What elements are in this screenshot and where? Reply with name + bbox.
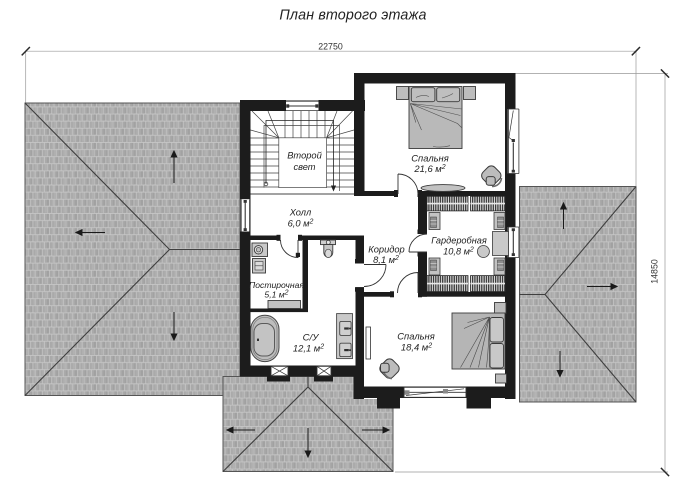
svg-text:18,4 м2: 18,4 м2 xyxy=(401,342,432,353)
svg-text:10,8 м2: 10,8 м2 xyxy=(443,247,474,257)
svg-text:Второй: Второй xyxy=(287,151,322,161)
svg-text:Постирочная: Постирочная xyxy=(249,280,304,290)
svg-text:14850: 14850 xyxy=(650,259,660,284)
svg-text:Коридор: Коридор xyxy=(368,245,404,255)
svg-text:Гардеробная: Гардеробная xyxy=(431,236,487,246)
svg-text:Спальня: Спальня xyxy=(397,331,434,342)
svg-text:свет: свет xyxy=(293,162,315,172)
svg-text:12,1 м2: 12,1 м2 xyxy=(293,343,324,354)
svg-text:21,6 м2: 21,6 м2 xyxy=(413,163,445,174)
svg-text:22750: 22750 xyxy=(318,42,343,52)
svg-text:Холл: Холл xyxy=(289,207,312,217)
svg-text:План второго этажа: План второго этажа xyxy=(279,8,426,24)
